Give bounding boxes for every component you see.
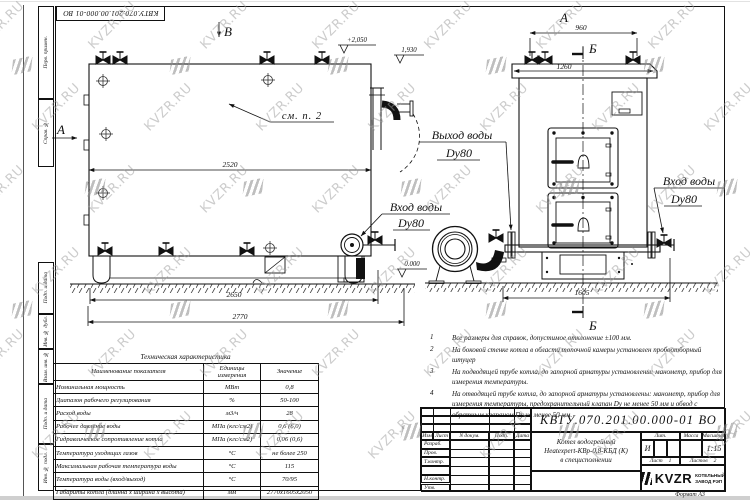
- tb-sheet-cell: Лист1: [641, 457, 680, 465]
- side-view-fittings: [96, 52, 382, 255]
- dim-2770: 2770: [233, 312, 248, 321]
- company-name: КОТЕЛЬНЫЙ ЗАВОД РЭП: [695, 473, 725, 484]
- dim-2650: 2650: [227, 290, 242, 299]
- tb-row-tkontr: Т.контр.: [421, 457, 450, 466]
- tb-row-empty: [421, 466, 450, 475]
- dim-960: 960: [575, 23, 587, 32]
- table-row: Габариты котла (длинна х ширина х высота…: [54, 486, 319, 499]
- tb-row-razrab: Разраб.: [421, 440, 450, 449]
- note-item: 3На подводящей трубе котла, до запорной …: [430, 367, 726, 388]
- tech-header-unit: Единицы измерения: [204, 364, 261, 381]
- front-view-fittings: [489, 52, 671, 247]
- side-inlet-dy: Dy80: [397, 216, 424, 230]
- side-inlet-label: Вход воды: [390, 200, 442, 214]
- drawing-sheet: КВТУ.070.201.00.000-01 ВО Перв. примен. …: [0, 0, 750, 500]
- tb-col-list: Лист: [433, 432, 450, 440]
- dim-1260: 1260: [557, 62, 572, 71]
- dim-1605: 1605: [575, 288, 590, 297]
- tech-header-row: Наименование показателя Единицы измерени…: [54, 364, 319, 381]
- view-label-B: В: [224, 24, 232, 39]
- title-block: Изм Лист N докум. Подп. Дата Разраб. Про…: [420, 407, 725, 491]
- dim-2520: 2520: [223, 160, 238, 169]
- tb-row-utv: Утв.: [421, 484, 450, 493]
- table-row: Максимальная рабочая температура воды°С1…: [54, 460, 319, 473]
- blower-fan: [429, 227, 506, 284]
- tb-row-nkontr: Н.контр.: [421, 475, 450, 484]
- tb-doc-number-cell: КВТУ.070.201.00.000-01 ВО: [531, 408, 726, 432]
- tb-mass-value: [680, 440, 702, 457]
- section-label-B-top: Б: [588, 41, 597, 56]
- table-row: Гидравлическое сопротивление котлаМПа (к…: [54, 433, 319, 446]
- front-view-dimensions: 960 1260 1605: [503, 23, 670, 302]
- doc-number: КВТУ.070.201.00.000-01 ВО: [540, 413, 717, 428]
- tb-col-data: Дата: [514, 432, 531, 440]
- side-view-annotations: В А см. п. 2 +2,050 1,930 0.000 Вход вод…: [52, 22, 450, 277]
- kvzr-logo-text: KVZR: [655, 471, 692, 486]
- table-row: Температура уходящих газов°Сне более 250: [54, 446, 319, 459]
- elev-2050: +2,050: [347, 37, 367, 44]
- format-label: Формат А3: [640, 492, 740, 498]
- elev-1930: 1,930: [401, 47, 417, 54]
- tb-company-cell: KVZR КОТЕЛЬНЫЙ ЗАВОД РЭП: [641, 465, 726, 492]
- elev-0000: 0.000: [404, 261, 420, 268]
- front-inlet-label: Вход воды: [663, 174, 715, 188]
- tb-row-prov: Пров.: [421, 449, 450, 458]
- table-row: Номинальная мощностьМВт0,8: [54, 381, 319, 394]
- note-item: 2На боковой стенке котла в области топоч…: [430, 345, 726, 366]
- tb-col-izm: Изм: [421, 432, 433, 440]
- tb-name-cell: Котел водогрейный Heatexpert-КВр-0,8-КБД…: [531, 432, 641, 471]
- tech-header-value: Значение: [261, 364, 319, 381]
- tb-scale-label: Масштаб: [702, 432, 726, 440]
- see-note-label: см. п. 2: [282, 111, 322, 122]
- view-label-A-side: А: [56, 122, 65, 137]
- kvzr-logo-icon: [642, 472, 652, 485]
- front-inlet-dy: Dy80: [670, 192, 697, 206]
- note-item: 1Все размеры для справок, допустимое отк…: [430, 333, 726, 344]
- tech-table-title: Техническая характеристика: [53, 353, 318, 363]
- tb-empty-cell: [531, 471, 641, 492]
- tb-lit-value: И: [641, 440, 654, 457]
- tb-lit-label: Лит.: [641, 432, 680, 440]
- view-label-A-front: А: [559, 10, 568, 25]
- tech-table: Наименование показателя Единицы измерени…: [53, 363, 319, 500]
- table-row: Температура воды (вход/выход)°С70/95: [54, 473, 319, 486]
- table-row: Диапазон рабочего регулирования%50-100: [54, 394, 319, 407]
- tech-characteristics: Техническая характеристика Наименование …: [53, 353, 318, 500]
- side-view: [70, 64, 420, 293]
- tb-sheets-cell: Листов2: [680, 457, 726, 465]
- table-row: Расход водым3/ч28: [54, 407, 319, 420]
- tb-scale-value: 1:15: [702, 440, 726, 457]
- table-row: Рабочее давление водыМПа (кгс/см2)0,6 (6…: [54, 420, 319, 433]
- section-label-B-bottom: Б: [588, 318, 597, 333]
- outlet-label: Выход воды: [432, 128, 493, 142]
- tech-header-name: Наименование показателя: [54, 364, 204, 381]
- tb-mass-label: Масса: [680, 432, 702, 440]
- tb-col-podp: Подп.: [489, 432, 514, 440]
- tb-col-ndoc: N докум.: [450, 432, 489, 440]
- outlet-dy: Dy80: [445, 146, 472, 160]
